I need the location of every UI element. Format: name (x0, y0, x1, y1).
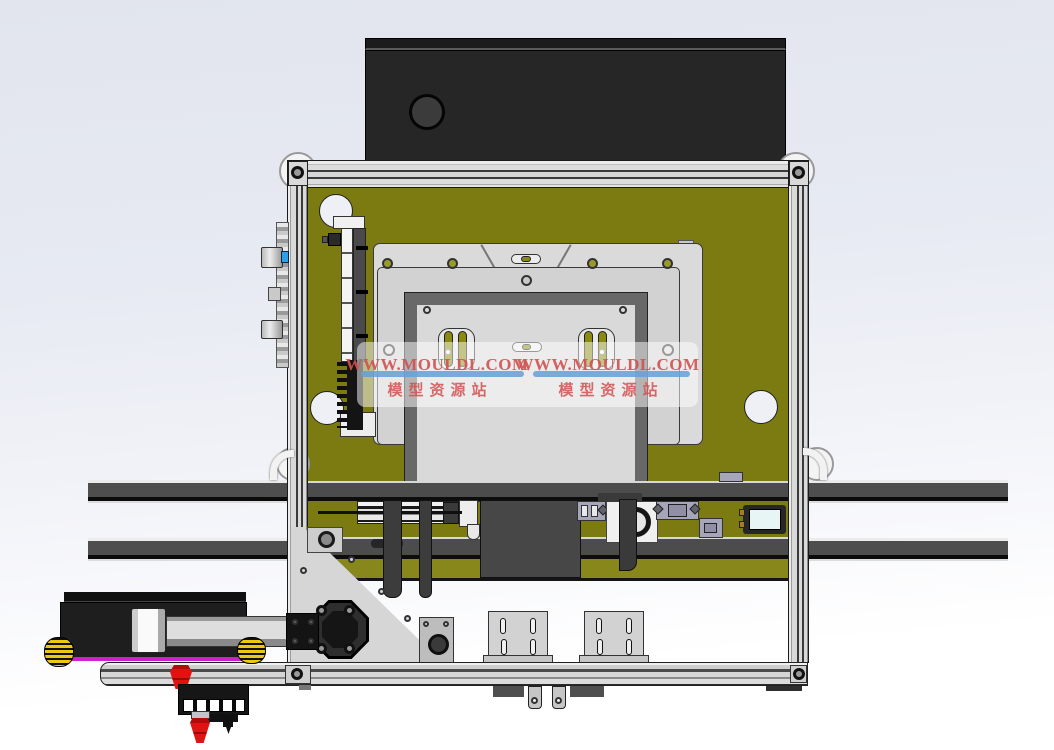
center-gearbox (480, 500, 581, 578)
corner-bearing-bolt-2 (443, 621, 449, 627)
lead-screw-left (383, 500, 402, 598)
beam-right-tab (766, 686, 802, 691)
panel-bottom-edge (308, 578, 789, 581)
lug-hole-1 (531, 697, 538, 704)
watermark-sitename-2: 模型资源站 (558, 379, 663, 400)
inner-plate-hook-right (619, 306, 627, 314)
corner-bolt-top-right (792, 166, 805, 179)
bracket-slot (596, 618, 602, 634)
connector-square (268, 287, 281, 301)
piston-collar (131, 608, 166, 653)
corner-bearing-bolt-1 (423, 621, 429, 627)
bracket-slot (530, 618, 536, 634)
motor-bolt-2 (344, 605, 355, 616)
ladder-rail (341, 228, 353, 362)
nozzle-tip (226, 727, 231, 734)
ladder-connector (328, 233, 341, 246)
panel-hole-bottom-right (744, 390, 778, 424)
motor-bolt-4 (344, 643, 355, 654)
beam-pad-1 (493, 686, 524, 697)
bracket-slot (626, 618, 632, 634)
mount-bracket-right (584, 611, 644, 657)
top-housing-lid (365, 38, 786, 50)
panel-tab (719, 472, 743, 482)
bracket-slot (500, 618, 506, 634)
rod-bracket-bolt-4 (308, 638, 314, 644)
limit-switch-slot-2 (591, 505, 598, 517)
knob-lower (261, 320, 283, 339)
plate-screw-1 (382, 258, 393, 269)
nozzle-tip-body (223, 714, 233, 727)
mount-bracket-left (488, 611, 548, 657)
rod-bracket-bolt-1 (292, 619, 298, 625)
ladder-tick-2 (356, 290, 368, 294)
corner-bolt-top-left (291, 166, 304, 179)
roller-right (237, 637, 266, 664)
beam-pad-2 (570, 686, 604, 697)
rail-left-upper (88, 480, 288, 503)
limit-switch-slot-1 (581, 505, 588, 517)
bracket-slot (501, 639, 507, 655)
gusset-hole-3 (300, 567, 307, 574)
nozzle-cap (191, 711, 210, 719)
beam-bolt-right (793, 668, 805, 680)
plate-screw-4 (662, 258, 673, 269)
bracket-slot (530, 639, 536, 655)
lead-screw-right (419, 500, 432, 598)
sensor-block-1-window (668, 504, 687, 517)
plate-screw-3 (587, 258, 598, 269)
watermark-underline-2 (533, 371, 690, 377)
frame-top-beam (287, 160, 808, 188)
beam-foot (299, 685, 311, 690)
watermark-sitename-1: 模型资源站 (387, 379, 492, 400)
sensor-block-2-window (704, 523, 717, 533)
rod-bracket-bolt-3 (292, 638, 298, 644)
knob-blue (281, 251, 289, 263)
gusset-hole-5 (404, 615, 411, 622)
watermark-underline-1 (361, 371, 524, 377)
sight-glass-knob-1 (739, 509, 745, 516)
knob-upper (261, 247, 283, 268)
cross-band-upper (308, 481, 789, 501)
gusset-hole-1 (348, 556, 355, 563)
pilot-hole (521, 275, 532, 286)
corner-bearing (428, 634, 449, 655)
top-slot-pin (521, 256, 531, 262)
roller-left (44, 637, 74, 667)
plate-screw-2 (447, 258, 458, 269)
rod-bracket-bolt-2 (308, 619, 314, 625)
sight-glass-knob-2 (739, 521, 745, 528)
rail-left-lower (88, 538, 288, 561)
rod-hook (467, 524, 480, 540)
inner-plate-hook-left (423, 306, 431, 314)
piston-rod (166, 616, 288, 647)
rod-end-bracket (286, 613, 319, 650)
frame-right-post (788, 160, 809, 663)
sight-glass (749, 509, 781, 530)
rail-right-upper (807, 480, 1008, 503)
ladder-connector-stub (322, 236, 328, 243)
cad-viewport: WWW.MOULDL.COM WWW.MOULDL.COM 模型资源站 模型资源… (0, 0, 1054, 750)
cable-tube-left (270, 450, 294, 480)
gusset-hole-2 (378, 588, 385, 595)
bottom-beam (100, 662, 808, 686)
lug-hole-2 (555, 697, 562, 704)
ladder-tick-1 (356, 246, 368, 250)
dark-column (619, 499, 637, 571)
nozzle-cone (190, 718, 210, 743)
rail-right-lower (807, 538, 1008, 561)
bracket-slot (597, 639, 603, 655)
housing-knob (409, 94, 445, 130)
gusset-bearing (318, 531, 335, 548)
ladder-tick-3 (356, 334, 368, 338)
carriage-strip (62, 657, 253, 661)
bracket-slot (626, 639, 632, 655)
beam-bolt-left (291, 668, 303, 680)
